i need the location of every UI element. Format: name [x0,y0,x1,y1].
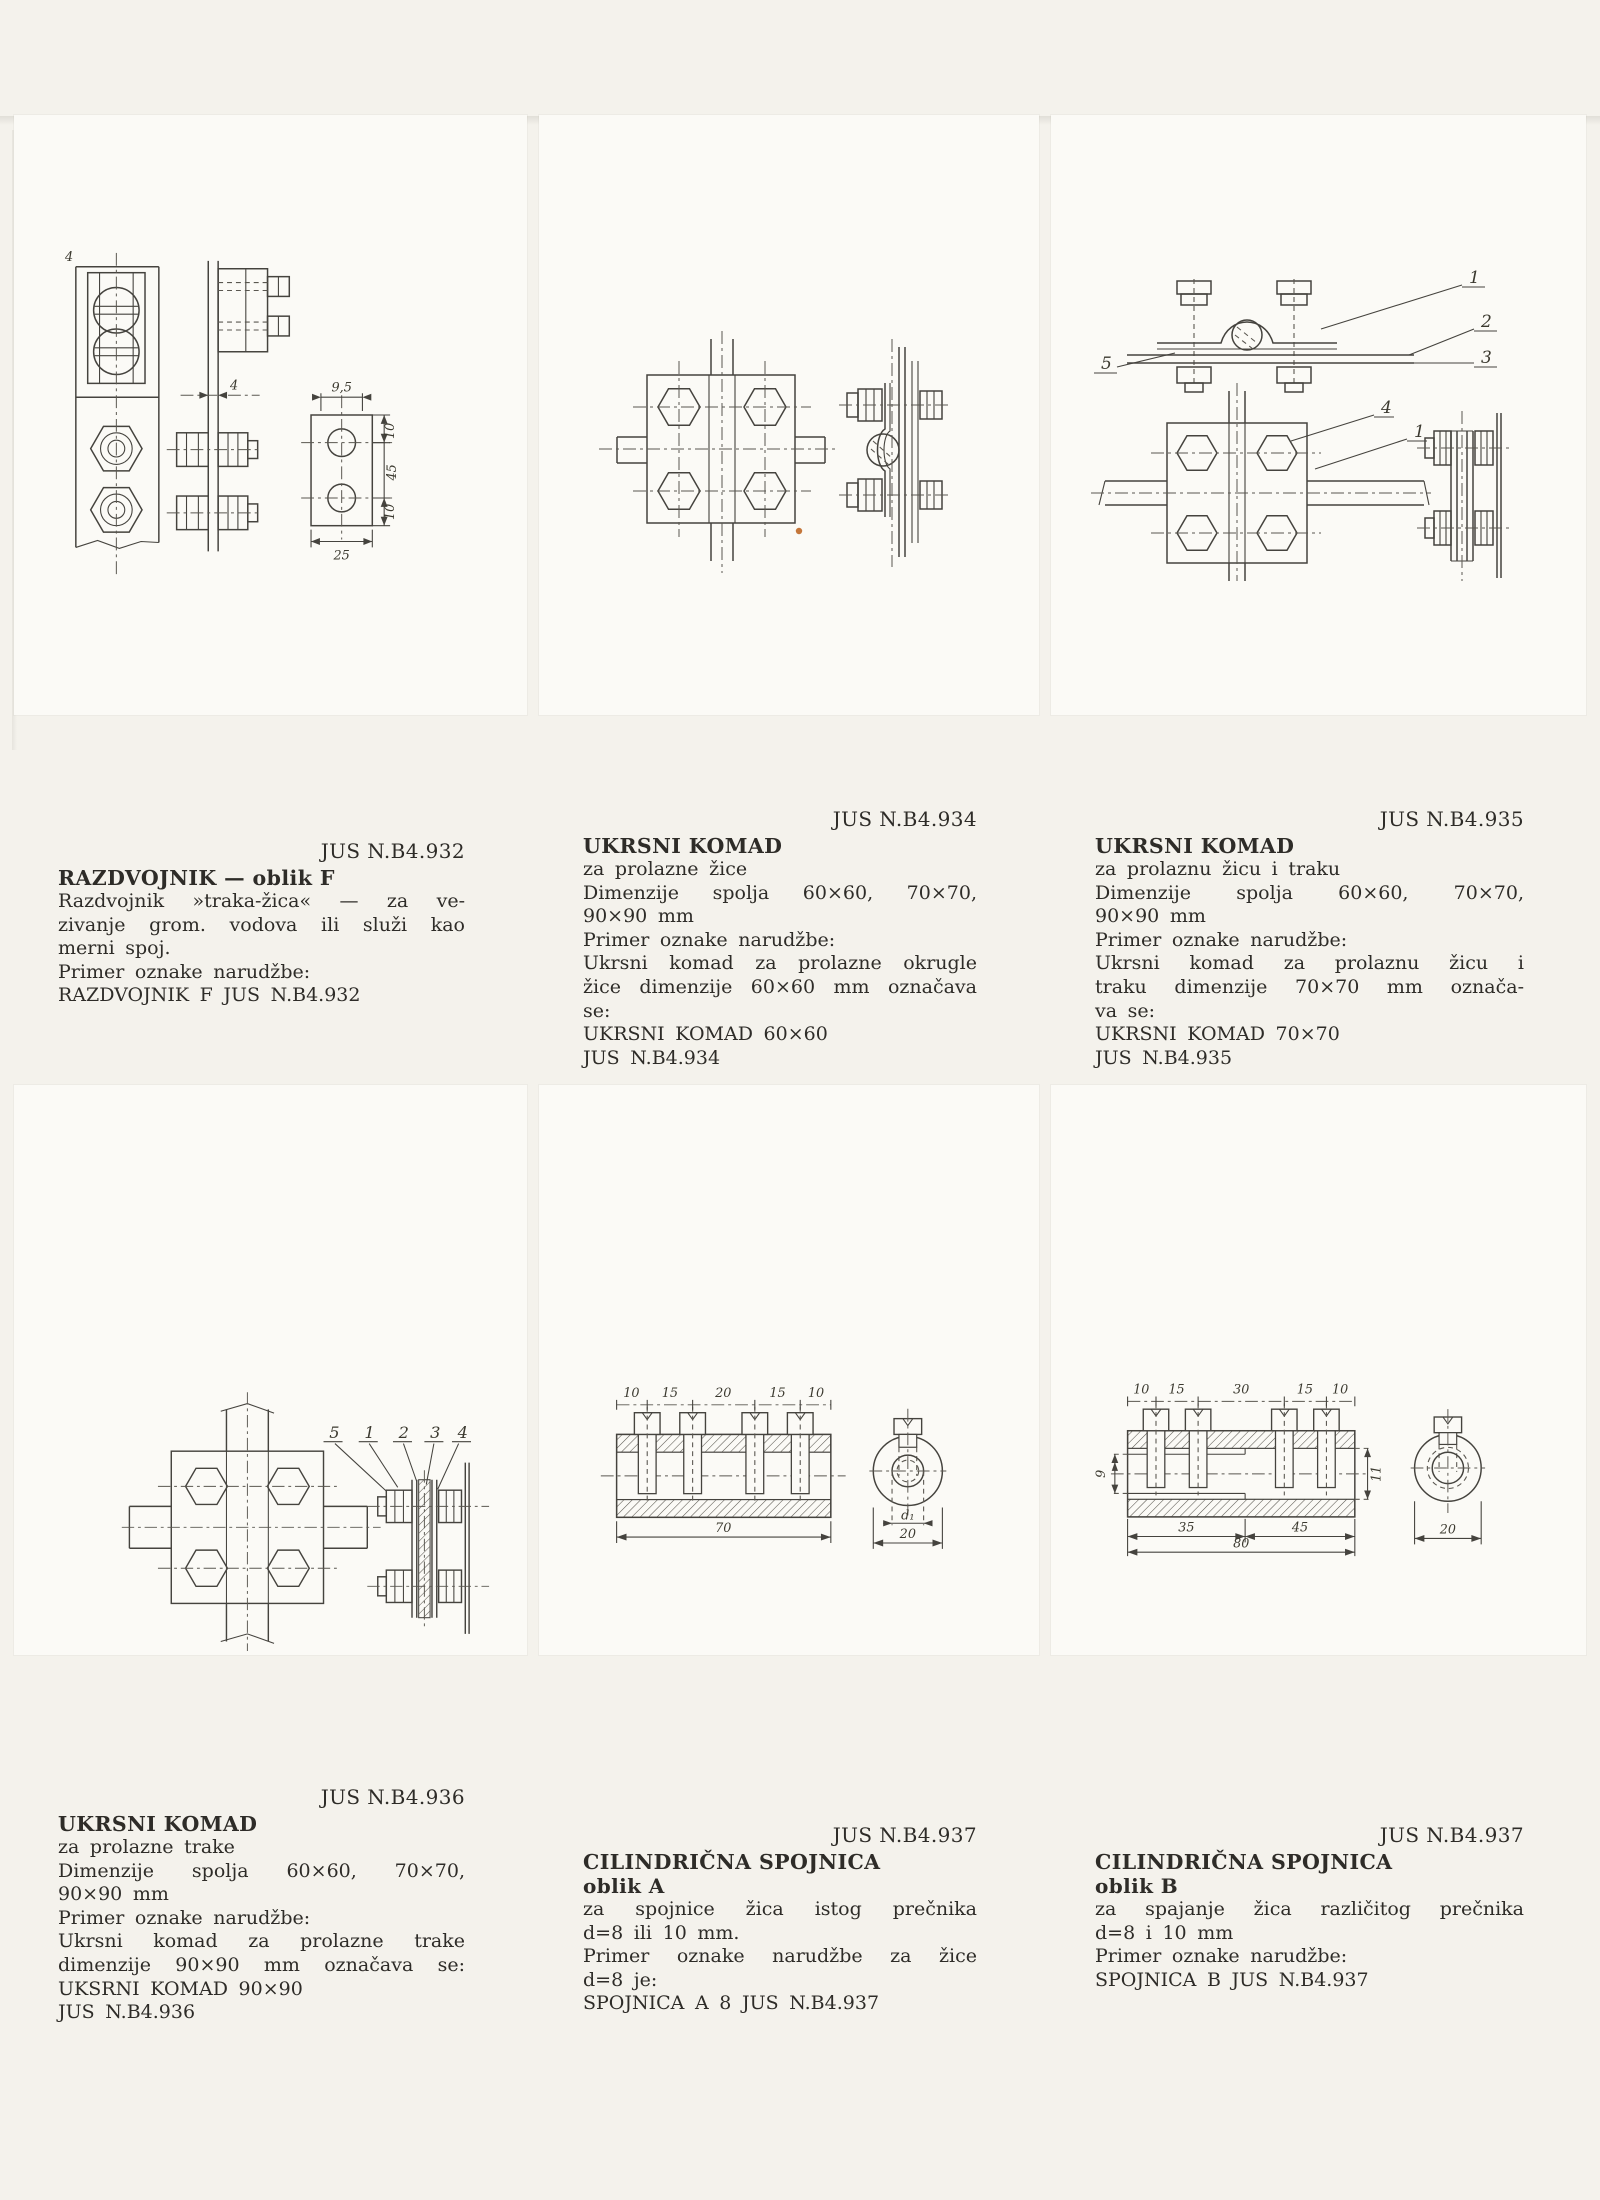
callout-label: 1 [364,1423,374,1442]
standard-panel-nb4935: 1 2 3 5 [1051,115,1586,1085]
dim-label: 9,5 [331,380,351,395]
body-line: 90×90 mm [58,1883,465,1907]
body-line: žice dimenzije 60×60 mm označava [583,976,977,1000]
ukrsni-komad-zice-drawing [589,327,949,577]
body-line: Dimenzije spolja 60×60, 70×70, [58,1860,465,1884]
standard-code: JUS N.B4.934 [583,807,977,831]
standard-text-935: JUS N.B4.935 UKRSNI KOMAD za prolaznu ži… [1051,715,1586,1070]
standard-text-932: JUS N.B4.932 RAZDVOJNIK — oblik F Razdvo… [14,715,527,1008]
body-line: Primer oznake narudžbe za žice [583,1945,977,1969]
dim-label: 15 [662,1386,678,1401]
callout-label: 4 [1380,398,1392,418]
body-line: Primer oznake narudžbe: [1095,929,1524,953]
screw [787,1407,813,1502]
body-line: d=8 i 10 mm [1095,1922,1524,1946]
drawing-card-934 [539,115,1039,715]
body-line: merni spoj. [58,937,465,961]
section-view: 10 15 30 15 10 9 11 [1094,1383,1384,1557]
standard-code: JUS N.B4.936 [58,1785,465,1809]
callout-label: 3 [430,1423,440,1442]
dim-label: 10 [808,1386,824,1401]
body-line: traku dimenzije 70×70 mm označa- [1095,976,1524,1000]
standard-title: CILINDRIČNA SPOJNICA [583,1850,977,1874]
side-view: 5 1 2 3 4 [324,1423,490,1634]
cilindricna-spojnica-b-drawing: 10 15 30 15 10 9 11 [1093,1370,1505,1561]
dim-label: 45 [385,464,398,481]
dim-label: 20 [899,1527,916,1542]
screw [680,1407,706,1502]
standard-title: UKRSNI KOMAD [583,834,977,858]
dim-label: 10 [383,423,398,439]
body-line: va se: [1095,1000,1524,1024]
body-line: zivanje grom. vodova ili služi kao [58,914,465,938]
body-line: Dimenzije spolja 60×60, 70×70, [583,882,977,906]
body-line: UKSRNI KOMAD 90×90 [58,1978,465,2002]
front-view: 4 1 [1091,383,1431,581]
dim-label: 15 [1297,1383,1313,1398]
dim-label: 9 [1094,1470,1109,1478]
drawing-card-937a: 10 15 20 15 10 70 [539,1085,1039,1655]
body-line: Ukrsni komad za prolazne trake [58,1930,465,1954]
dim-label: 20 [714,1386,731,1401]
dim-label: 45 [1291,1521,1308,1536]
standard-panel-nb4936: 5 1 2 3 4 [14,1085,527,2085]
body-line: Primer oznake narudžbe: [58,961,465,985]
dim-label: 35 [1178,1521,1194,1536]
callout-label: 5 [329,1423,339,1442]
scanned-standards-page: { "colors": {"paper":"#f4f2ec","card":"#… [0,0,1600,2200]
right-side-view [1417,411,1513,581]
dim-label: 20 [1439,1523,1456,1538]
callout-label: 2 [398,1423,409,1442]
body-line: Dimenzije spolja 60×60, 70×70, [1095,882,1524,906]
standard-panel-nb4934: JUS N.B4.934 UKRSNI KOMAD za prolazne ži… [539,115,1039,1085]
callout-label: 1 [1414,422,1425,442]
body-line: JUS N.B4.935 [1095,1047,1524,1071]
dim-label: 70 [715,1521,731,1536]
standard-title: RAZDVOJNIK — oblik F [58,866,465,890]
body-line: JUS N.B4.934 [583,1047,977,1071]
standard-text-936: JUS N.B4.936 UKRSNI KOMAD za prolazne tr… [14,1655,527,2025]
dim-label: 10 [1332,1383,1348,1398]
standard-text-937b: JUS N.B4.937 CILINDRIČNA SPOJNICA oblik … [1051,1655,1586,1992]
dim-label: 80 [1233,1536,1249,1551]
standard-subtitle: oblik A [583,1874,977,1898]
body-line: za spajanje žica različitog prečnika [1095,1898,1524,1922]
ukrsni-komad-trake-drawing: 5 1 2 3 4 [114,1337,514,1651]
body-line: za prolaznu žicu i traku [1095,858,1524,882]
standard-title: CILINDRIČNA SPOJNICA [1095,1850,1524,1874]
body-line: d=8 je: [583,1969,977,1993]
scan-speck [796,528,802,534]
top-side-view: 1 2 3 5 [1094,268,1497,392]
dim-label: 4 [229,378,238,393]
screw [1143,1403,1168,1495]
dim-label: 15 [1168,1383,1184,1398]
standard-title: UKRSNI KOMAD [58,1812,465,1836]
callout-label: 5 [1101,354,1112,374]
section-view: 10 15 20 15 10 70 [601,1386,846,1543]
body-line: se: [583,1000,977,1024]
body-line: UKRSNI KOMAD 70×70 [1095,1023,1524,1047]
end-view: 9,5 10 45 10 25 [301,380,398,563]
front-view [599,331,839,573]
standard-subtitle: oblik B [1095,1874,1524,1898]
drawing-card-935: 1 2 3 5 [1051,115,1586,715]
body-line: za prolazne žice [583,858,977,882]
dim-label: 25 [333,548,350,563]
cilindricna-spojnica-a-drawing: 10 15 20 15 10 70 [587,1377,972,1557]
callout-label: 3 [1481,348,1492,368]
callout-label: 4 [457,1423,468,1442]
drawing-card-932: 4 4 [14,115,527,715]
dim-label: 4 [64,250,73,265]
body-line: JUS N.B4.936 [58,2001,465,2025]
side-view: 4 [167,261,290,552]
dim-label: 11 [1369,1466,1384,1482]
body-line: dimenzije 90×90 mm označava se: [58,1954,465,1978]
drawing-card-937b: 10 15 30 15 10 9 11 [1051,1085,1586,1655]
standard-code: JUS N.B4.932 [58,839,465,863]
dim-label: 10 [1133,1383,1149,1398]
callout-label: 1 [1469,268,1480,288]
dim-label: 15 [769,1386,785,1401]
front-view [122,1392,381,1651]
body-line: Primer oznake narudžbe: [583,929,977,953]
body-line: SPOJNICA A 8 JUS N.B4.937 [583,1992,977,2016]
dim-label: d₁ [901,1508,914,1523]
dim-label: 10 [383,504,398,520]
screw [742,1407,768,1502]
standard-code: JUS N.B4.935 [1095,807,1524,831]
side-view [839,339,949,567]
panel-grid: 4 4 [14,115,1586,2085]
ukrsni-komad-zica-traka-drawing: 1 2 3 5 [1079,263,1519,583]
body-line: za prolazne trake [58,1836,465,1860]
body-line: 90×90 mm [583,905,977,929]
screw [634,1407,660,1502]
standard-text-937a: JUS N.B4.937 CILINDRIČNA SPOJNICA oblik … [539,1655,1039,2016]
dim-label: 10 [623,1386,639,1401]
callout-label: 2 [1480,312,1492,332]
standard-code: JUS N.B4.937 [583,1823,977,1847]
standard-title: UKRSNI KOMAD [1095,834,1524,858]
end-view: d₁ 20 [869,1409,946,1549]
body-line: za spojnice žica istog prečnika [583,1898,977,1922]
body-line: Ukrsni komad za prolaznu žicu i [1095,952,1524,976]
razdvojnik-technical-drawing: 4 4 [62,247,398,583]
standard-code: JUS N.B4.937 [1095,1823,1524,1847]
body-line: Primer oznake narudžbe: [1095,1945,1524,1969]
screw [1272,1403,1297,1495]
dim-label: 30 [1233,1383,1249,1398]
screw [1314,1403,1339,1495]
screw [1185,1403,1210,1495]
front-view: 4 [64,250,159,575]
standard-panel-nb4932: 4 4 [14,115,527,1085]
body-line: Primer oznake narudžbe: [58,1907,465,1931]
body-line: UKRSNI KOMAD 60×60 [583,1023,977,1047]
body-line: d=8 ili 10 mm. [583,1922,977,1946]
standard-panel-nb4937b: 10 15 30 15 10 9 11 [1051,1085,1586,2085]
body-line: RAZDVOJNIK F JUS N.B4.932 [58,984,465,1008]
body-line: Razdvojnik »traka-žica« — za ve- [58,890,465,914]
body-line: Ukrsni komad za prolazne okrugle [583,952,977,976]
body-line: SPOJNICA B JUS N.B4.937 [1095,1969,1524,1993]
standard-panel-nb4937a: 10 15 20 15 10 70 [539,1085,1039,2085]
body-line: 90×90 mm [1095,905,1524,929]
standard-text-934: JUS N.B4.934 UKRSNI KOMAD za prolazne ži… [539,715,1039,1070]
drawing-card-936: 5 1 2 3 4 [14,1085,527,1655]
end-view: 20 [1411,1409,1485,1544]
